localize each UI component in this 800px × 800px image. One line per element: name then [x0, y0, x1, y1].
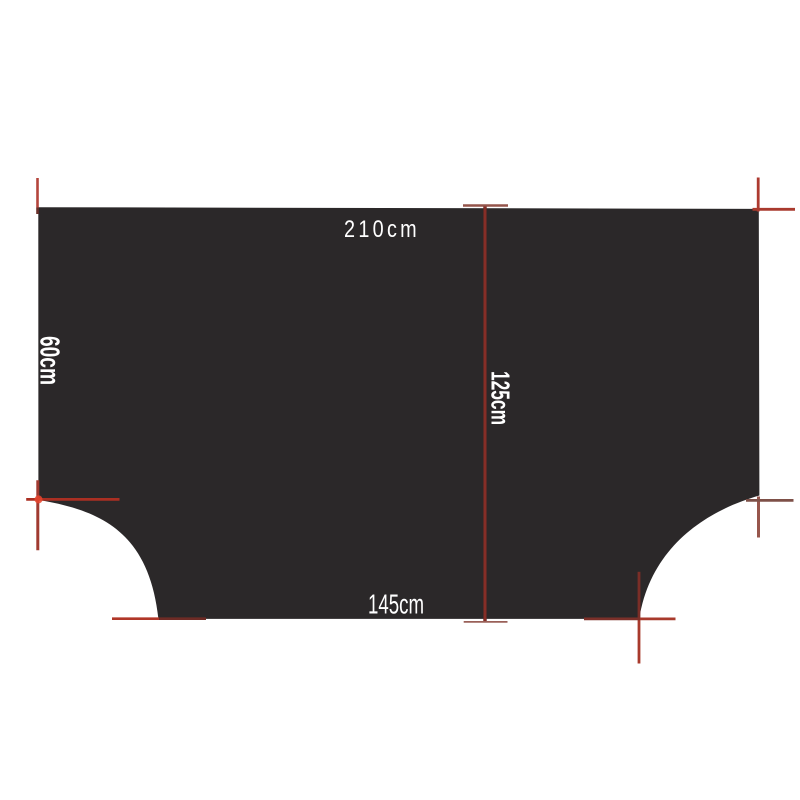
- svg-text:60cm: 60cm: [35, 336, 66, 385]
- svg-text:125cm: 125cm: [486, 371, 516, 425]
- svg-text:210cm: 210cm: [344, 216, 420, 243]
- svg-text:145cm: 145cm: [368, 589, 424, 620]
